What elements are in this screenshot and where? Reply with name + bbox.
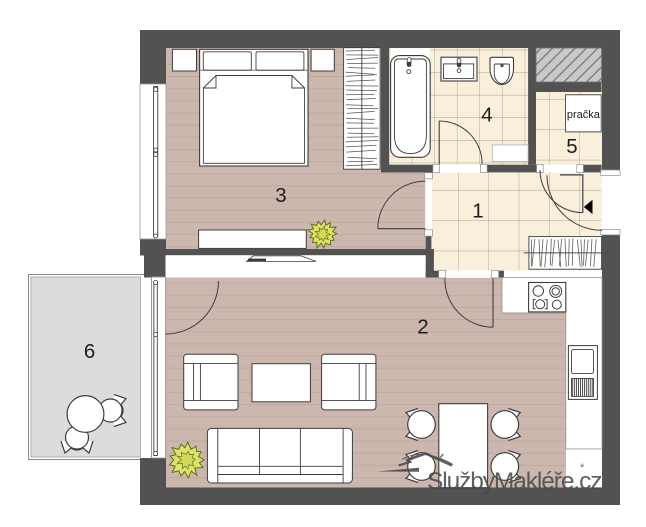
- svg-text:3: 3: [275, 184, 286, 207]
- svg-text:SlužbyMakléře.cz: SlužbyMakléře.cz: [427, 468, 602, 495]
- svg-text:2: 2: [417, 316, 428, 339]
- svg-text:pračka: pračka: [567, 109, 601, 121]
- svg-text:1: 1: [472, 200, 483, 223]
- svg-text:4: 4: [481, 104, 492, 127]
- svg-text:5: 5: [566, 135, 577, 158]
- svg-text:6: 6: [84, 340, 95, 363]
